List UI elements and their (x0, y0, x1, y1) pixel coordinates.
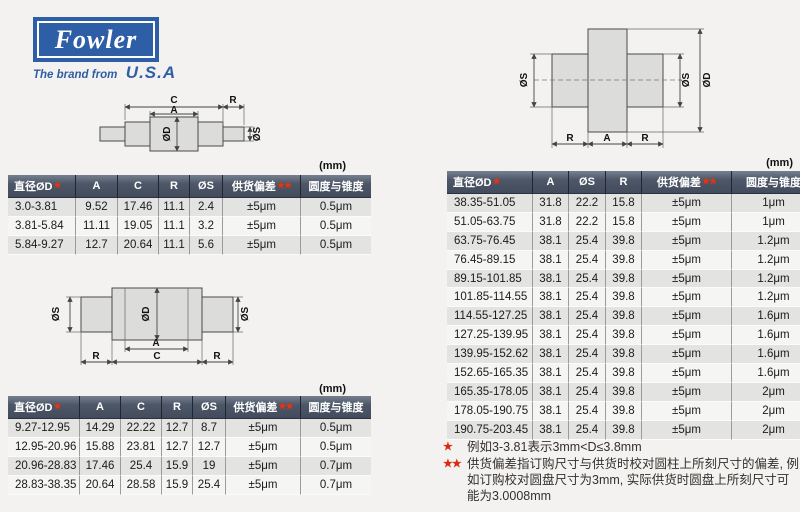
table-cell: 22.22 (121, 419, 162, 438)
dim-label-a: A (152, 338, 159, 349)
column-header: 直径ØD★ (447, 171, 533, 194)
column-header-label: R (173, 401, 181, 413)
table-cell: 20.64 (80, 476, 121, 495)
column-header: ØS (190, 175, 223, 198)
shaft-step-left (125, 122, 150, 146)
table-cell: 0.5μm (301, 438, 371, 457)
table-cell: 0.5μm (301, 419, 371, 438)
table-row: 114.55-127.2538.125.439.8±5μm1.6μm (447, 307, 800, 326)
table-row: 3.81-5.8411.1119.0511.13.2±5μm0.5μm (8, 217, 371, 236)
column-header-label: A (96, 401, 104, 413)
table-cell: 11.1 (159, 198, 190, 217)
table-row: 76.45-89.1538.125.439.8±5μm1.2μm (447, 251, 800, 270)
dim-label-os: ØS (51, 306, 62, 321)
column-header-label: 圆度与锥度 (309, 181, 364, 193)
footnotes: ★ 例如3-3.81表示3mm<D≤3.8mm ★★ 供货偏差指订购尺寸与供货时… (443, 439, 799, 505)
footnote-star-icon: ★★ (277, 180, 291, 190)
table-cell: 76.45-89.15 (447, 251, 533, 270)
table-cell: 139.95-152.62 (447, 345, 533, 364)
footnote-star-icon: ★ (54, 180, 61, 190)
table-cell: 25.4 (569, 421, 606, 440)
column-header: ØS (569, 171, 606, 194)
table-cell: ±5μm (642, 194, 732, 213)
table-row: 12.95-20.9615.8823.8112.712.7±5μm0.5μm (8, 438, 371, 457)
table-cell: 1.6μm (732, 326, 800, 345)
table-cell: 38.1 (533, 364, 569, 383)
column-header: 供货偏差★★ (223, 175, 301, 198)
catalog-page: Fowler The brand from U.S.A C R A ØD (0, 0, 800, 512)
column-header-label: C (137, 401, 145, 413)
table-cell: 39.8 (606, 251, 642, 270)
table-cell: 15.8 (606, 213, 642, 232)
table-cell: 89.15-101.85 (447, 270, 533, 289)
table-cell: 127.25-139.95 (447, 326, 533, 345)
table-cell: 25.4 (569, 402, 606, 421)
spec-table-large-diameters: 直径ØD★AØSR供货偏差★★圆度与锥度38.35-51.0531.822.21… (447, 171, 800, 440)
table-cell: 25.4 (193, 476, 226, 495)
footnote-double-star: ★★ 供货偏差指订购尺寸与供货时校对圆柱上所刻尺寸的偏差, 例如订购校对圆盘尺寸… (443, 456, 799, 504)
table-row: 9.27-12.9514.2922.2212.78.7±5μm0.5μm (8, 419, 371, 438)
column-header-label: 圆度与锥度 (309, 402, 364, 414)
header-row: 直径ØD★AØSR供货偏差★★圆度与锥度 (447, 171, 800, 194)
table-cell: 178.05-190.75 (447, 402, 533, 421)
table-cell: ±5μm (642, 288, 732, 307)
table-row: 178.05-190.7538.125.439.8±5μm2μm (447, 402, 800, 421)
column-header-label: ØS (201, 401, 217, 413)
column-header: ØS (193, 396, 226, 419)
shaft-end-left (100, 127, 125, 141)
table-cell: 2μm (732, 402, 800, 421)
dim-label-r: R (229, 95, 237, 106)
table-cell: 8.7 (193, 419, 226, 438)
table-row: 101.85-114.5538.125.439.8±5μm1.2μm (447, 288, 800, 307)
column-header-label: 供货偏差 (233, 402, 277, 414)
table-cell: 1.6μm (732, 307, 800, 326)
table-cell: 25.4 (569, 364, 606, 383)
table-cell: 38.1 (533, 251, 569, 270)
unit-label: (mm) (8, 383, 346, 395)
dim-label-od: ØD (162, 127, 173, 142)
column-header-label: 直径ØD (14, 181, 53, 193)
table-cell: ±5μm (223, 198, 301, 217)
table-cell: 25.4 (569, 251, 606, 270)
table-cell: 25.4 (569, 383, 606, 402)
tagline-country: U.S.A (126, 63, 176, 82)
footnote-star-icon: ★ (493, 176, 500, 186)
table-cell: 39.8 (606, 270, 642, 289)
table-row: 3.0-3.819.5217.4611.12.4±5μm0.5μm (8, 198, 371, 217)
table-cell: 1.6μm (732, 364, 800, 383)
center-disc (150, 117, 198, 151)
table-cell: 63.75-76.45 (447, 232, 533, 251)
column-header-label: A (93, 180, 101, 192)
table-cell: 1.6μm (732, 345, 800, 364)
unit-label: (mm) (8, 160, 346, 172)
table-cell: 38.1 (533, 270, 569, 289)
table-row: 51.05-63.7531.822.215.8±5μm1μm (447, 213, 800, 232)
fowler-logo-frame: Fowler (37, 21, 155, 58)
table-cell: 25.4 (569, 326, 606, 345)
table-cell: 0.7μm (301, 476, 371, 495)
dim-label-r: R (92, 351, 100, 362)
footnote-single-star: ★ 例如3-3.81表示3mm<D≤3.8mm (443, 439, 799, 455)
table-cell: 1.2μm (732, 270, 800, 289)
table-cell: 39.8 (606, 383, 642, 402)
table-cell: 2μm (732, 383, 800, 402)
table-cell: 0.5μm (301, 217, 371, 236)
table-cell: 0.5μm (301, 198, 371, 217)
column-header-label: ØS (579, 176, 595, 188)
table-cell: 20.96-28.83 (8, 457, 80, 476)
table-cell: 38.1 (533, 421, 569, 440)
column-header: C (121, 396, 162, 419)
table-cell: 38.1 (533, 307, 569, 326)
dim-label-os: ØS (240, 306, 251, 321)
footnote-text: 例如3-3.81表示3mm<D≤3.8mm (467, 440, 642, 454)
dim-label-od: ØD (702, 73, 713, 88)
table-cell: 1.2μm (732, 288, 800, 307)
star-icon: ★ (443, 439, 452, 455)
table-cell: 12.7 (162, 419, 193, 438)
table-cell: ±5μm (642, 270, 732, 289)
table-cell: 25.4 (569, 232, 606, 251)
table-cell: 39.8 (606, 232, 642, 251)
table-cell: ±5μm (226, 419, 301, 438)
table-cell: 3.81-5.84 (8, 217, 76, 236)
table-cell: 1.2μm (732, 232, 800, 251)
table-cell: 39.8 (606, 307, 642, 326)
table-row: 89.15-101.8538.125.439.8±5μm1.2μm (447, 270, 800, 289)
table-cell: 28.83-38.35 (8, 476, 80, 495)
table-cell: ±5μm (642, 307, 732, 326)
column-header-label: 直径ØD (14, 402, 53, 414)
dim-label-a: A (603, 133, 610, 144)
table-cell: 38.1 (533, 345, 569, 364)
table-cell: 20.64 (118, 236, 159, 255)
header-row: 直径ØD★ACRØS供货偏差★★圆度与锥度 (8, 175, 371, 198)
footnote-text: 供货偏差指订购尺寸与供货时校对圆柱上所刻尺寸的偏差, 例如订购校对圆盘尺寸为3m… (467, 457, 799, 503)
column-header: A (80, 396, 121, 419)
table-cell: 38.1 (533, 288, 569, 307)
table-row: 152.65-165.3538.125.439.8±5μm1.6μm (447, 364, 800, 383)
table-cell: 25.4 (569, 307, 606, 326)
table-cell: 190.75-203.45 (447, 421, 533, 440)
column-header: C (118, 175, 159, 198)
dim-label-r: R (641, 133, 649, 144)
table-cell: 0.7μm (301, 457, 371, 476)
table-cell: 19 (193, 457, 226, 476)
table-cell: ±5μm (642, 383, 732, 402)
dim-label-os: ØS (519, 72, 530, 87)
table-row: 190.75-203.4538.125.439.8±5μm2μm (447, 421, 800, 440)
table-cell: ±5μm (226, 476, 301, 495)
table-cell: 12.95-20.96 (8, 438, 80, 457)
table-cell: ±5μm (226, 438, 301, 457)
table-row: 139.95-152.6238.125.439.8±5μm1.6μm (447, 345, 800, 364)
table-cell: 15.9 (162, 476, 193, 495)
table-cell: 38.1 (533, 402, 569, 421)
table-cell: ±5μm (642, 251, 732, 270)
table-row: 5.84-9.2712.720.6411.15.6±5μm0.5μm (8, 236, 371, 255)
table-cell: 1.2μm (732, 251, 800, 270)
table-cell: 114.55-127.25 (447, 307, 533, 326)
table-row: 20.96-28.8317.4625.415.919±5μm0.7μm (8, 457, 371, 476)
table-cell: 28.58 (121, 476, 162, 495)
column-header-label: C (134, 180, 142, 192)
shaft-right (202, 297, 233, 332)
dim-label-c: C (153, 351, 160, 362)
table-cell: 22.2 (569, 213, 606, 232)
double-star-icon: ★★ (443, 456, 461, 472)
table-cell: 31.8 (533, 213, 569, 232)
shaft-right (627, 54, 663, 107)
fowler-logo: Fowler (33, 17, 159, 62)
column-header: 供货偏差★★ (642, 171, 732, 194)
table-row: 127.25-139.9538.125.439.8±5μm1.6μm (447, 326, 800, 345)
shaft-step-right (198, 122, 223, 146)
table-cell: 9.27-12.95 (8, 419, 80, 438)
table-cell: 25.4 (569, 270, 606, 289)
table-cell: 15.9 (162, 457, 193, 476)
table-cell: 38.1 (533, 383, 569, 402)
table-cell: ±5μm (223, 217, 301, 236)
table-cell: 25.4 (569, 345, 606, 364)
table-cell: 25.4 (121, 457, 162, 476)
column-header: R (159, 175, 190, 198)
table-cell: 12.7 (193, 438, 226, 457)
table-row: 28.83-38.3520.6428.5815.925.4±5μm0.7μm (8, 476, 371, 495)
table-cell: 14.29 (80, 419, 121, 438)
unit-label: (mm) (447, 157, 793, 169)
table-cell: 1μm (732, 213, 800, 232)
table-cell: ±5μm (223, 236, 301, 255)
table-cell: 101.85-114.55 (447, 288, 533, 307)
footnote-star-icon: ★★ (278, 401, 292, 411)
spec-table-medium-diameters: 直径ØD★ACRØS供货偏差★★圆度与锥度9.27-12.9514.2922.2… (8, 396, 371, 495)
table-cell: ±5μm (226, 457, 301, 476)
table-cell: 25.4 (569, 288, 606, 307)
dim-label-os: ØS (252, 126, 263, 141)
dim-label-os: ØS (681, 72, 692, 87)
table-cell: ±5μm (642, 421, 732, 440)
table-cell: 38.1 (533, 232, 569, 251)
diagram-disc-large: ØS ØS ØD R A R (520, 22, 725, 157)
table-cell: 9.52 (76, 198, 118, 217)
column-header: 圆度与锥度 (301, 175, 371, 198)
table-row: 38.35-51.0531.822.215.8±5μm1μm (447, 194, 800, 213)
table-cell: ±5μm (642, 345, 732, 364)
table-cell: 39.8 (606, 402, 642, 421)
table-cell: 2μm (732, 421, 800, 440)
table-cell: 38.35-51.05 (447, 194, 533, 213)
shaft-left (81, 297, 112, 332)
table-cell: 2.4 (190, 198, 223, 217)
table-cell: 39.8 (606, 364, 642, 383)
table-cell: ±5μm (642, 232, 732, 251)
table-cell: ±5μm (642, 326, 732, 345)
table-cell: ±5μm (642, 402, 732, 421)
column-header-label: R (620, 176, 628, 188)
table-cell: 23.81 (121, 438, 162, 457)
center-disc (588, 29, 627, 132)
footnote-star-icon: ★ (54, 401, 61, 411)
table-cell: 5.84-9.27 (8, 236, 76, 255)
column-header: 供货偏差★★ (226, 396, 301, 419)
table-cell: ±5μm (642, 213, 732, 232)
brand-tagline: The brand from U.S.A (33, 63, 203, 83)
column-header: 圆度与锥度 (301, 396, 371, 419)
table-cell: 0.5μm (301, 236, 371, 255)
table-cell: 152.65-165.35 (447, 364, 533, 383)
dim-label-r: R (213, 351, 221, 362)
dim-label-r: R (566, 133, 574, 144)
spec-table-small-diameters: 直径ØD★ACRØS供货偏差★★圆度与锥度3.0-3.819.5217.4611… (8, 175, 371, 255)
dim-label-od: ØD (141, 307, 152, 322)
table-row: 63.75-76.4538.125.439.8±5μm1.2μm (447, 232, 800, 251)
table-cell: 11.1 (159, 236, 190, 255)
shaft-end-right (223, 127, 244, 141)
column-header: 直径ØD★ (8, 396, 80, 419)
footnote-star-icon: ★★ (702, 176, 716, 186)
shaft-left (552, 54, 588, 107)
table-cell: 39.8 (606, 288, 642, 307)
diagram-stepped-cylinder-medium: ØS ØD ØS A C R R (50, 272, 255, 372)
column-header-label: 供货偏差 (232, 181, 276, 193)
table-cell: 22.2 (569, 194, 606, 213)
table-cell: 39.8 (606, 326, 642, 345)
table-cell: 19.05 (118, 217, 159, 236)
column-header: 圆度与锥度 (732, 171, 800, 194)
table-cell: 15.8 (606, 194, 642, 213)
column-header: A (76, 175, 118, 198)
table-cell: 12.7 (76, 236, 118, 255)
table-cell: 3.2 (190, 217, 223, 236)
table-cell: 15.88 (80, 438, 121, 457)
dim-label-a: A (170, 105, 177, 116)
table-cell: 39.8 (606, 345, 642, 364)
table-cell: 51.05-63.75 (447, 213, 533, 232)
column-header: A (533, 171, 569, 194)
table-cell: 165.35-178.05 (447, 383, 533, 402)
column-header-label: 直径ØD (453, 177, 492, 189)
tagline-text: The brand from (33, 69, 117, 81)
table-cell: 39.8 (606, 421, 642, 440)
table-cell: 17.46 (80, 457, 121, 476)
table-cell: 12.7 (162, 438, 193, 457)
column-header: R (162, 396, 193, 419)
table-row: 165.35-178.0538.125.439.8±5μm2μm (447, 383, 800, 402)
table-cell: 3.0-3.81 (8, 198, 76, 217)
column-header-label: A (547, 176, 555, 188)
column-header-label: 供货偏差 (657, 177, 701, 189)
column-header: 直径ØD★ (8, 175, 76, 198)
table-cell: 1μm (732, 194, 800, 213)
table-cell: 38.1 (533, 326, 569, 345)
header-row: 直径ØD★ACRØS供货偏差★★圆度与锥度 (8, 396, 371, 419)
column-header-label: ØS (198, 180, 214, 192)
table-cell: 31.8 (533, 194, 569, 213)
column-header: R (606, 171, 642, 194)
table-cell: 17.46 (118, 198, 159, 217)
diagram-stepped-cylinder-small: C R A ØD ØS (92, 86, 277, 160)
table-cell: 11.11 (76, 217, 118, 236)
column-header-label: R (170, 180, 178, 192)
table-cell: 5.6 (190, 236, 223, 255)
table-cell: ±5μm (642, 364, 732, 383)
table-cell: 11.1 (159, 217, 190, 236)
column-header-label: 圆度与锥度 (746, 177, 800, 189)
brand-name: Fowler (55, 27, 138, 53)
